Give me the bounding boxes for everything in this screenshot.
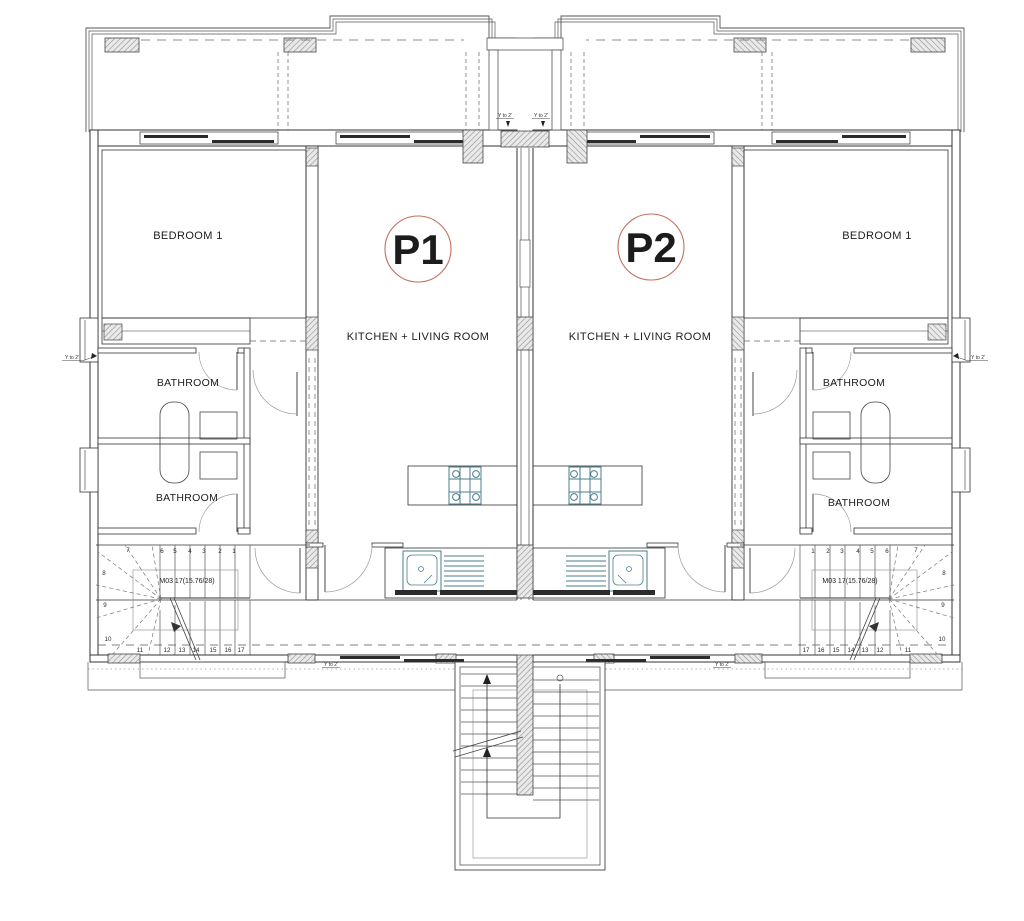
- svg-text:13: 13: [179, 647, 186, 654]
- svg-text:11: 11: [905, 647, 912, 654]
- floor-plan: P1 P2 BEDROOM 1 BEDROOM 1 KITCHEN + LIVI…: [0, 0, 1024, 921]
- unit-geometry: [80, 16, 518, 678]
- svg-text:16: 16: [818, 647, 825, 654]
- svg-text:7: 7: [126, 547, 130, 554]
- svg-text:16: 16: [225, 647, 232, 654]
- room-label-kitchen-p1: KITCHEN + LIVING ROOM: [347, 331, 490, 343]
- room-label-bedroom-p2: BEDROOM 1: [842, 230, 912, 242]
- svg-text:14: 14: [193, 647, 200, 654]
- svg-text:7: 7: [914, 547, 918, 554]
- svg-text:10: 10: [939, 636, 946, 643]
- svg-text:13: 13: [862, 647, 869, 654]
- unit-geometry-mirrored: [532, 16, 970, 678]
- svg-text:14: 14: [848, 647, 855, 654]
- svg-text:Y to 2': Y to 2': [65, 355, 79, 361]
- svg-text:9: 9: [941, 602, 945, 609]
- floor-plan-page: P1 P2 BEDROOM 1 BEDROOM 1 KITCHEN + LIVI…: [0, 0, 1024, 921]
- room-label-kitchen-p2: KITCHEN + LIVING ROOM: [569, 331, 712, 343]
- unit-p1-label: P1: [392, 226, 443, 273]
- svg-text:8: 8: [942, 570, 946, 577]
- svg-text:Y to 2': Y to 2': [324, 662, 338, 668]
- svg-text:10: 10: [105, 636, 112, 643]
- svg-text:2: 2: [218, 548, 222, 555]
- svg-text:9: 9: [103, 602, 107, 609]
- stair-label-p2: M03 17(15.76/28): [822, 578, 877, 585]
- svg-text:4: 4: [856, 548, 860, 555]
- stair-numbers-left: 1 2 3 4 5 6 7 8 9 10 11 12 13 14 15 16 1…: [102, 547, 245, 654]
- svg-text:1: 1: [811, 548, 815, 555]
- svg-text:1: 1: [232, 548, 236, 555]
- svg-text:11: 11: [137, 647, 144, 654]
- svg-text:5: 5: [870, 548, 874, 555]
- svg-text:8: 8: [102, 570, 106, 577]
- svg-text:Y to 2': Y to 2': [971, 355, 985, 361]
- unit-p2-label: P2: [625, 224, 676, 271]
- room-label-bathroom-upper-p1: BATHROOM: [157, 377, 219, 389]
- svg-text:15: 15: [210, 647, 217, 654]
- room-label-bathroom-lower-p2: BATHROOM: [828, 497, 890, 509]
- svg-text:4: 4: [188, 548, 192, 555]
- svg-text:17: 17: [803, 647, 810, 654]
- svg-text:Y to 2': Y to 2': [498, 113, 512, 119]
- room-label-bedroom-p1: BEDROOM 1: [153, 230, 223, 242]
- room-label-bathroom-lower-p1: BATHROOM: [156, 492, 218, 504]
- svg-text:17: 17: [238, 647, 245, 654]
- svg-text:6: 6: [885, 548, 889, 555]
- svg-text:3: 3: [202, 548, 206, 555]
- stair-label-p1: M03 17(15.76/28): [159, 578, 214, 585]
- svg-text:12: 12: [877, 647, 884, 654]
- svg-text:3: 3: [840, 548, 844, 555]
- central-elements: [88, 38, 962, 870]
- svg-text:12: 12: [164, 647, 171, 654]
- svg-text:2: 2: [826, 548, 830, 555]
- svg-text:15: 15: [833, 647, 840, 654]
- svg-text:Y to 2': Y to 2': [534, 113, 548, 119]
- svg-text:Y to 2': Y to 2': [715, 662, 729, 668]
- svg-text:6: 6: [160, 548, 164, 555]
- svg-text:5: 5: [173, 548, 177, 555]
- room-label-bathroom-upper-p2: BATHROOM: [823, 377, 885, 389]
- stair-numbers-right: 1 2 3 4 5 6 7 8 9 10 11 12 13 14 15 16 1…: [803, 547, 947, 654]
